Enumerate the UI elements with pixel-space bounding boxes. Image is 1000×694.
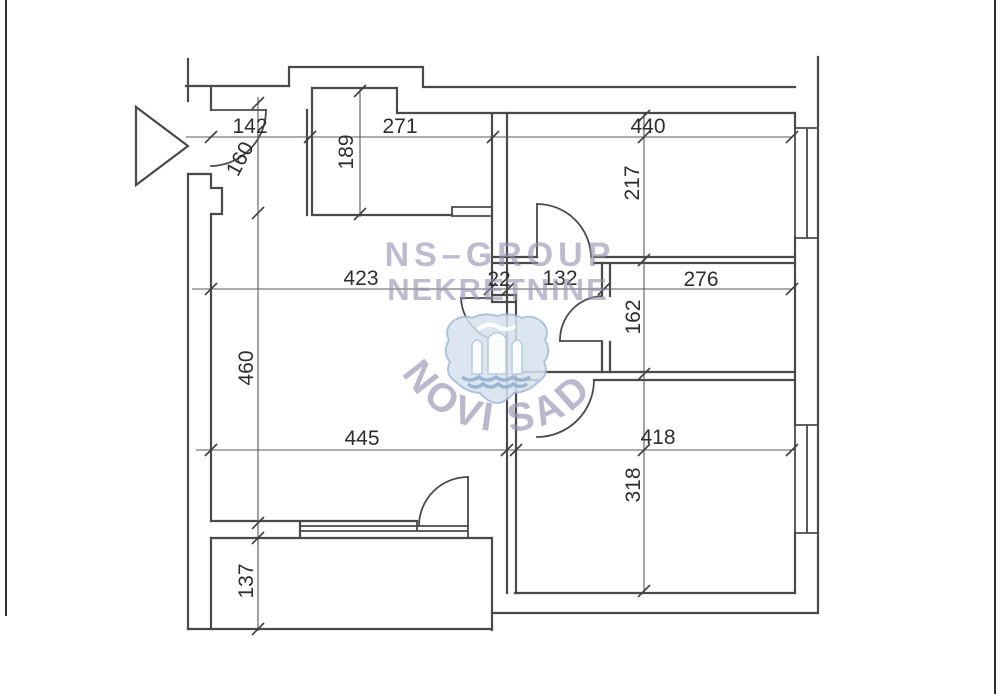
dim-label-living-depth: 460 xyxy=(235,350,258,385)
crest-tower-center xyxy=(488,333,506,375)
dim-label-niche-depth: 189 xyxy=(335,134,358,169)
dim-label-top-room-depth: 217 xyxy=(621,165,644,200)
balcony-outline xyxy=(188,538,492,630)
wall-living-bottom xyxy=(211,521,492,538)
watermark: NS–GROUP NEKRETNINE NOVI SAD xyxy=(385,236,616,441)
wall-left-inner-notch xyxy=(188,174,222,521)
balcony-door-arc xyxy=(419,477,468,526)
floor-plan-drawing: 142 271 440 160 189 217 423 22 132 276 1… xyxy=(0,0,1000,694)
dim-label-entry-depth: 160 xyxy=(222,138,259,180)
kitchen-niche-walls xyxy=(307,88,795,215)
crest-tower-right xyxy=(512,340,522,374)
window-symbol xyxy=(795,425,818,533)
dim-label-niche-width: 271 xyxy=(382,115,417,138)
balcony-window-symbol xyxy=(300,521,468,538)
wall-bottom-right-room xyxy=(492,593,818,613)
crest-tower-left xyxy=(472,340,482,374)
dim-label-bottom-room-depth: 318 xyxy=(622,467,645,502)
kitchen-pass-through xyxy=(452,207,492,216)
window-top-right xyxy=(795,128,818,238)
dim-label-entry-width: 142 xyxy=(232,115,267,138)
dim-label-top-room-width: 440 xyxy=(630,115,665,138)
dim-label-middle-room-depth: 162 xyxy=(622,299,645,334)
dim-label-balcony-depth: 137 xyxy=(235,563,258,598)
watermark-company-name: NS–GROUP xyxy=(385,236,616,274)
dim-label-middle-room-width: 276 xyxy=(683,268,718,291)
dim-label-hall-width: 423 xyxy=(343,267,378,290)
dim-label-living-width: 445 xyxy=(344,427,379,450)
floor-plan-page: 142 271 440 160 189 217 423 22 132 276 1… xyxy=(0,0,1000,694)
window-bottom-right xyxy=(795,425,818,533)
dim-label-bottom-room-width: 418 xyxy=(640,426,675,449)
entrance-arrow-icon xyxy=(136,107,188,185)
window-symbol xyxy=(795,128,818,238)
watermark-subtitle: NEKRETNINE xyxy=(387,272,609,307)
wall-top-stepped xyxy=(289,67,795,87)
